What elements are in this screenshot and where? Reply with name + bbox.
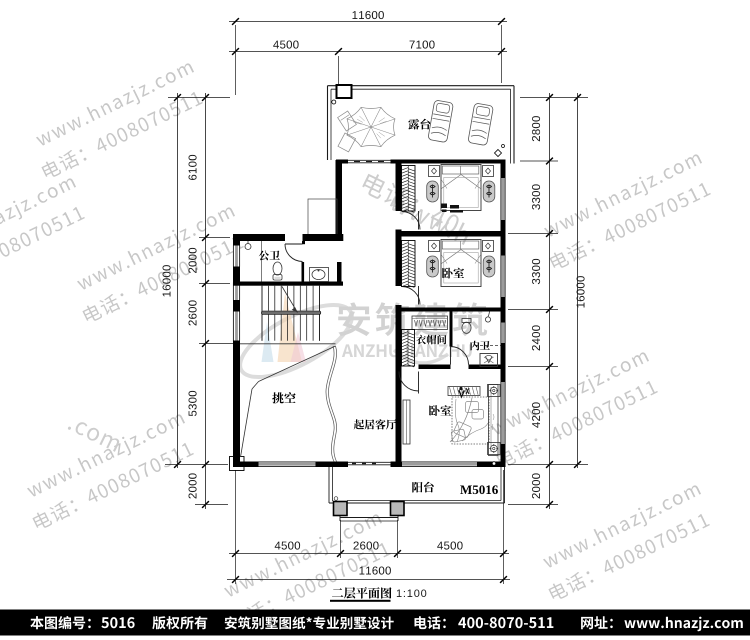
svg-text:1:100: 1:100 (396, 588, 428, 600)
